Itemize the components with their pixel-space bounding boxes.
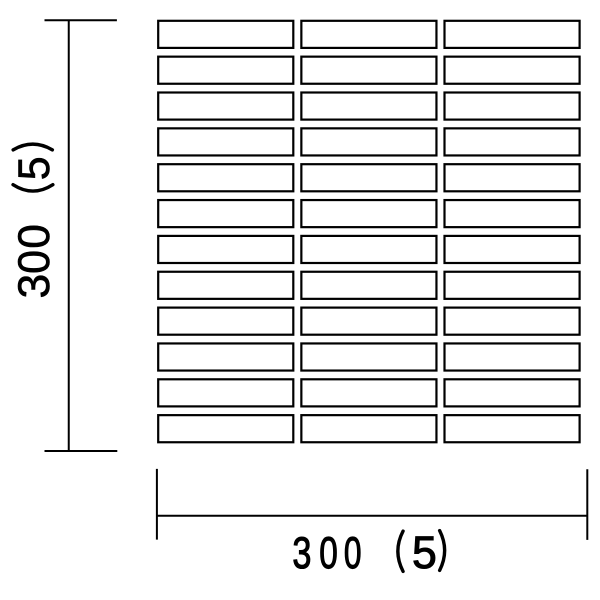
svg-text:0: 0 [344,529,362,579]
svg-text:3: 3 [10,274,59,299]
svg-text:0: 0 [10,224,59,249]
svg-text:0: 0 [319,528,338,578]
svg-text:5: 5 [412,526,437,577]
svg-text:3: 3 [292,528,311,577]
svg-text:0: 0 [9,250,59,274]
svg-text:5: 5 [9,156,59,180]
